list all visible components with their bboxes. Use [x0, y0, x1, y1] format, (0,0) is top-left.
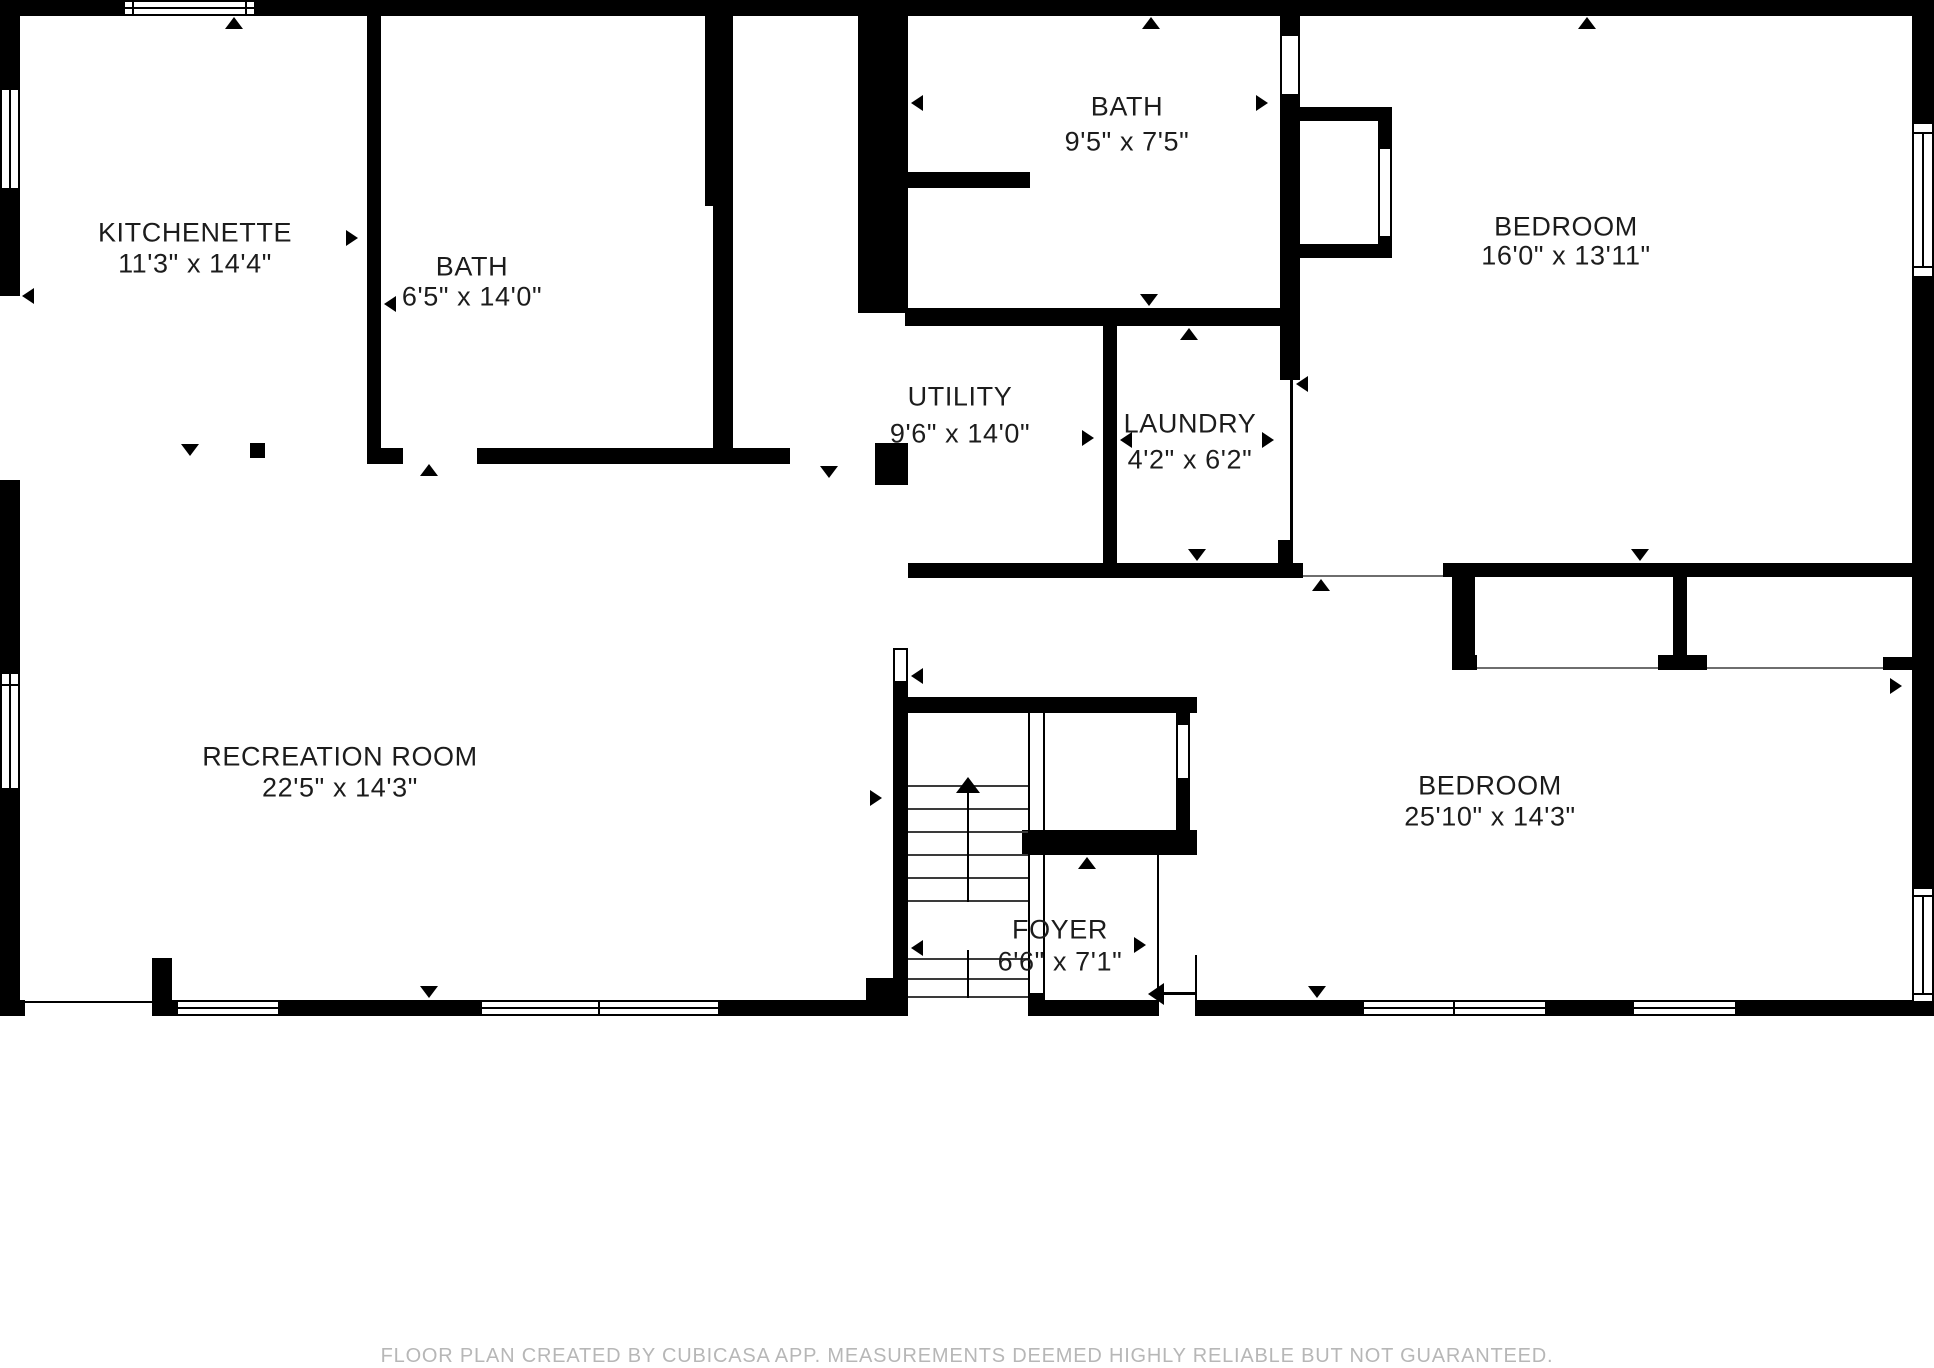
door-swing-arrow-icon: [1188, 549, 1206, 561]
door-swing-arrow-icon: [1256, 95, 1268, 111]
room-label-bedroom1-dims: 16'0" x 13'11": [1481, 241, 1651, 272]
door-swing-arrow-icon: [22, 288, 34, 304]
door-swing-arrow-icon: [911, 95, 923, 111]
door-swing-arrow-icon: [346, 230, 358, 246]
rec-foyer-door-frame: [893, 648, 908, 683]
door-swing-arrow-icon: [1296, 376, 1308, 392]
wall-bath-utility-upper: [705, 16, 733, 206]
door-opening-left-wall: [0, 296, 20, 480]
window-line: [1913, 895, 1933, 897]
door-swing-arrow-icon: [911, 940, 923, 956]
foyer-right-line-2: [1195, 955, 1197, 1016]
stair-direction-line: [967, 792, 969, 902]
door-swing-arrow-icon: [870, 790, 882, 806]
door-swing-arrow-icon: [1308, 986, 1326, 998]
bedroom1-door-line: [1303, 575, 1443, 577]
wall-laundry-stub: [1278, 540, 1293, 565]
wall-utility-laundry-divider: [1103, 326, 1117, 570]
wall-foyer-left-stub: [866, 978, 908, 1002]
footer-attribution: FLOOR PLAN CREATED BY CUBICASA APP. MEAS…: [381, 1345, 1554, 1368]
wall-kitchenette-bath-divider: [367, 16, 381, 464]
door-swing-arrow-icon: [1078, 857, 1096, 869]
window-line: [1453, 1001, 1455, 1015]
door-swing-arrow-icon: [1578, 17, 1596, 29]
door-opening-rec-foyer: [893, 485, 908, 648]
window-line: [482, 1007, 718, 1009]
wall-rec-top-a: [367, 448, 403, 464]
closet1-bottom: [1300, 244, 1392, 258]
room-label-bath2-dims: 9'5" x 7'5": [1065, 127, 1190, 158]
window-line: [132, 1, 134, 15]
wall-patio-door-stub: [152, 958, 172, 1002]
window-line: [9, 674, 11, 788]
closet-track-line-2: [1707, 667, 1883, 669]
entry-door-arrow-icon: [1148, 983, 1164, 1005]
room-label-bedroom2-name: BEDROOM: [1418, 771, 1562, 802]
door-swing-arrow-icon: [911, 668, 923, 684]
door-swing-arrow-icon: [1180, 328, 1198, 340]
wall-bath2-stub: [908, 172, 1030, 188]
foyer-closet-frame: [1176, 723, 1190, 780]
closet-row-stub-1: [1452, 577, 1475, 655]
closet-track-line-1: [1477, 667, 1658, 669]
room-label-foyer-dims: 6'6" x 7'1": [998, 947, 1123, 978]
room-label-bath2-name: BATH: [1091, 92, 1163, 123]
room-label-kitchenette-name: KITCHENETTE: [98, 218, 292, 249]
wall-bath-utility-lower: [713, 206, 733, 464]
closet-row-foot-3: [1883, 657, 1912, 670]
wall-foyer-top: [893, 697, 1197, 713]
entry-step-line: [967, 950, 969, 998]
room-label-foyer-name: FOYER: [1012, 915, 1108, 946]
door-swing-arrow-icon: [820, 466, 838, 478]
window-line: [1913, 993, 1933, 995]
room-label-recreation-name: RECREATION ROOM: [202, 742, 478, 773]
room-label-recreation-dims: 22'5" x 14'3": [262, 773, 418, 804]
door-swing-arrow-icon: [1082, 430, 1094, 446]
wall-bedroom-divider: [1443, 563, 1918, 577]
door-swing-arrow-icon: [1312, 579, 1330, 591]
room-label-utility-name: UTILITY: [908, 382, 1013, 413]
window-line: [598, 1001, 600, 1015]
door-swing-arrow-icon: [1262, 432, 1274, 448]
room-label-bath1-dims: 6'5" x 14'0": [402, 282, 542, 313]
door-opening-utility: [790, 448, 875, 464]
door-swing-arrow-icon: [1134, 937, 1146, 953]
wall-top: [0, 0, 1934, 16]
closet1-top: [1300, 107, 1392, 121]
wall-rec-top-b: [477, 448, 790, 464]
room-label-utility-dims: 9'6" x 14'0": [890, 419, 1030, 450]
window-line: [178, 1007, 278, 1009]
bath2-bedroom-frame: [1280, 34, 1300, 96]
room-label-laundry-dims: 4'2" x 6'2": [1128, 445, 1253, 476]
door-swing-arrow-icon: [225, 17, 243, 29]
door-opening-bath1: [403, 448, 477, 464]
door-swing-arrow-icon: [1890, 678, 1902, 694]
room-label-bath1-name: BATH: [436, 252, 508, 283]
front-door-opening: [908, 1000, 1028, 1016]
door-swing-arrow-icon: [1631, 549, 1649, 561]
wall-chimney-column: [858, 16, 908, 313]
window-line: [1922, 134, 1924, 266]
window-line: [9, 90, 11, 188]
window-line: [1634, 1007, 1735, 1009]
closet1-door-frame: [1378, 147, 1392, 238]
wall-foyer-closet-bottom: [1022, 830, 1197, 855]
window-line: [1913, 132, 1933, 134]
wall-laundry-thin-line: [1290, 380, 1293, 540]
floor-plan: KITCHENETTE 11'3" x 14'4" BATH 6'5" x 14…: [0, 0, 1934, 1368]
wall-foyer-closet-right-top: [1176, 713, 1190, 723]
door-swing-arrow-icon: [1142, 17, 1160, 29]
door-swing-arrow-icon: [420, 986, 438, 998]
closet-row-foot-1: [1452, 655, 1477, 670]
door-swing-arrow-icon: [1140, 294, 1158, 306]
wall-hall-bottom: [908, 563, 1303, 578]
room-label-bedroom1-name: BEDROOM: [1494, 212, 1638, 243]
door-swing-arrow-icon: [384, 296, 396, 312]
wall-foyer-closet-right-bottom: [1176, 780, 1190, 835]
fixture-square-icon: [250, 443, 265, 458]
room-label-kitchenette-dims: 11'3" x 14'4": [118, 249, 272, 280]
window-line: [1913, 266, 1933, 268]
wall-foyer-left: [893, 683, 908, 1016]
window-line: [1, 684, 19, 686]
closet-row-foot-2: [1658, 655, 1707, 670]
door-swing-arrow-icon: [420, 464, 438, 476]
door-swing-arrow-icon: [181, 444, 199, 456]
entry-door-shaft: [1162, 992, 1195, 995]
closet1-right-upper: [1378, 121, 1392, 147]
window-line: [125, 7, 254, 9]
closet-row-stub-2: [1673, 577, 1687, 655]
window-line: [245, 1, 247, 15]
room-label-bedroom2-dims: 25'10" x 14'3": [1404, 802, 1576, 833]
window-line: [1922, 897, 1924, 993]
wall-bath2-bottom: [905, 308, 1300, 326]
patio-door-line: [25, 1001, 152, 1003]
stair-up-arrow-icon: [956, 777, 980, 793]
room-label-laundry-name: LAUNDRY: [1124, 409, 1257, 440]
